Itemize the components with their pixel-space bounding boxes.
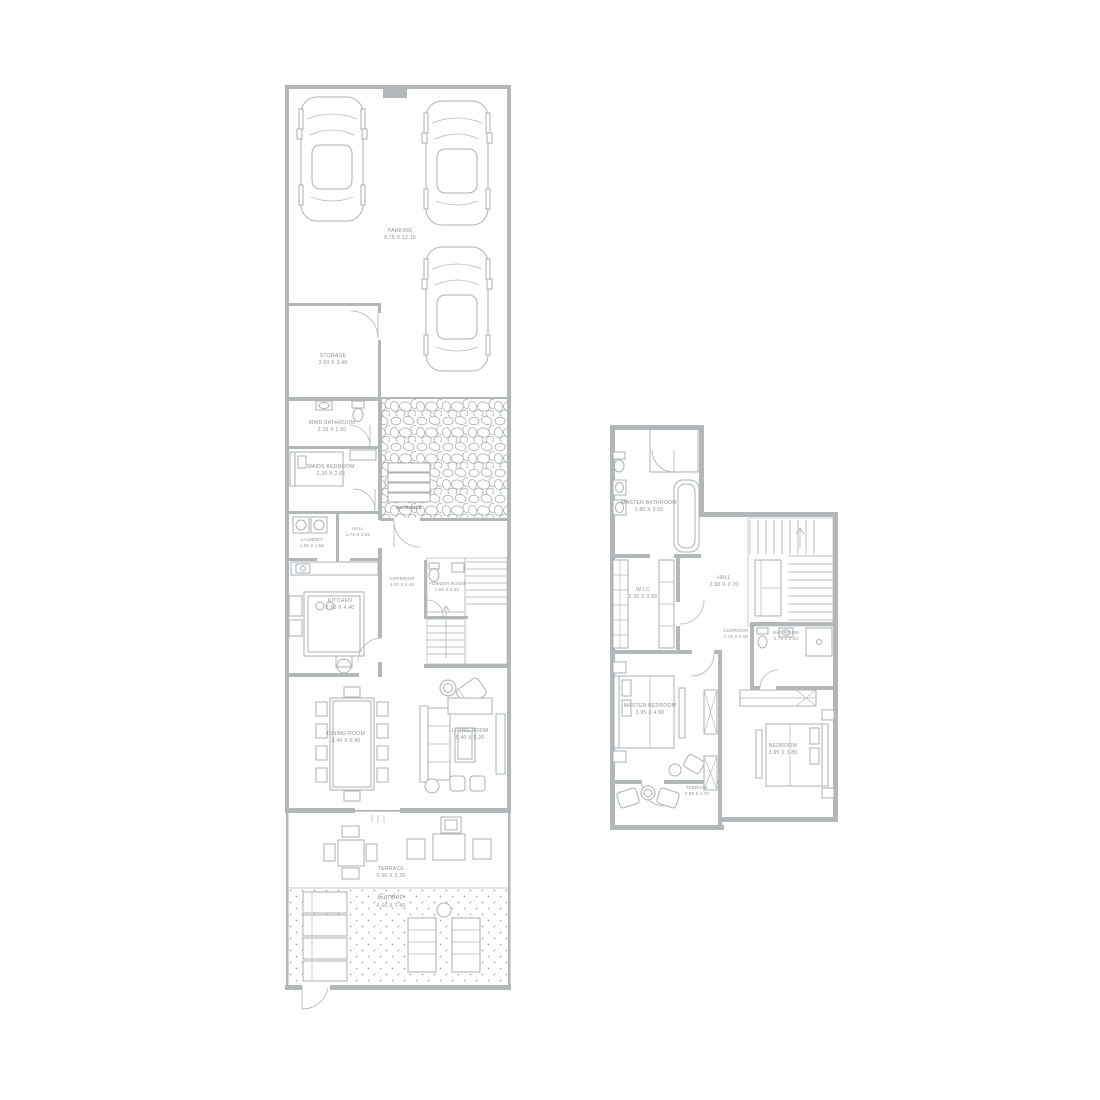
powder-room-label: POWDER ROOM bbox=[429, 581, 465, 586]
hall-ff-dim: 2.90 X 2.70 bbox=[710, 582, 739, 588]
nightstand-icon bbox=[822, 710, 834, 720]
bathroom-ff: BATHROOM 2.75 X 2.20 bbox=[757, 628, 832, 688]
sliding-door bbox=[355, 810, 400, 812]
entrance-courtyard: ENTRANCE bbox=[382, 399, 507, 547]
garden-dim: 6.60 X 2.40 bbox=[377, 903, 406, 909]
first-floor-plan: MASTER BATHROOM 1.80 X 3.60 W.I.C 2.50 X… bbox=[610, 425, 838, 830]
armchair-icon bbox=[683, 753, 706, 774]
master-bedroom: MASTER BEDROOM 3.95 X 4.90 bbox=[613, 654, 717, 790]
maids-bedroom-dim: 2.20 X 2.65 bbox=[317, 471, 346, 477]
laundry-room: LAUNDRY 1.60 X 1.50 bbox=[293, 517, 327, 548]
wic-dim: 2.50 X 3.65 bbox=[629, 594, 658, 600]
shower-icon bbox=[806, 628, 832, 656]
nightstand-icon bbox=[613, 662, 626, 673]
side-table-icon bbox=[425, 779, 439, 793]
dining-room-label: DINING ROOM bbox=[327, 731, 365, 737]
dining-room: DINING ROOM 3.40 X 5.40 bbox=[316, 687, 388, 801]
headboard bbox=[822, 724, 828, 786]
floor-plan-image: PARKING 8.75 X 12.15 STORAGE 3.50 X 3.40… bbox=[0, 0, 1100, 1100]
terrace-gf: TERRACE 6.60 X 3.20 bbox=[324, 815, 491, 879]
maid-bathroom: MAID BATHROOM 2.15 X 1.60 bbox=[309, 401, 370, 446]
sun-lounger-icon bbox=[303, 938, 347, 959]
terrace-ff-label: TERRACE bbox=[686, 785, 708, 790]
terrace-ff-dim: 2.95 X 1.70 bbox=[685, 791, 710, 796]
bedroom-ff-label: BEDROOM bbox=[769, 743, 797, 749]
sofa-back bbox=[420, 706, 428, 782]
storage-room: STORAGE 3.50 X 3.40 bbox=[319, 311, 378, 366]
living-room: LIVING ROOM 5.40 X 5.20 bbox=[420, 677, 505, 793]
living-room-label: LIVING ROOM bbox=[452, 728, 489, 734]
outdoor-chair-icon bbox=[473, 839, 491, 859]
floor-plan-page: PARKING 8.75 X 12.15 STORAGE 3.50 X 3.40… bbox=[0, 0, 1100, 1100]
maids-bedroom: MAIDS BEDROOM 2.20 X 2.65 bbox=[290, 450, 376, 511]
outdoor-chair-icon bbox=[407, 839, 425, 859]
corridor-ff: CORRIDOR 1.15 X 2.55 bbox=[724, 628, 749, 639]
ground-floor-plan: PARKING 8.75 X 12.15 STORAGE 3.50 X 3.40… bbox=[285, 85, 511, 1009]
maid-bathroom-label: MAID BATHROOM bbox=[309, 420, 356, 426]
master-bathroom-label: MASTER BATHROOM bbox=[621, 500, 677, 506]
wic-label: W.I.C bbox=[636, 587, 650, 593]
tv-console-icon bbox=[496, 714, 505, 774]
master-bathroom: MASTER BATHROOM 1.80 X 3.60 bbox=[613, 428, 699, 552]
kitchen-label: KITCHEN bbox=[328, 598, 352, 604]
parking-area: PARKING 8.75 X 12.15 bbox=[297, 97, 492, 371]
sun-lounger-icon bbox=[303, 892, 347, 913]
bed-bench-icon bbox=[679, 688, 685, 738]
bedroom-ff-dim: 3.65 X 3.85 bbox=[769, 750, 798, 756]
hall-gf: HALL 1.75 X 3.05 bbox=[346, 526, 371, 537]
nightstand-icon bbox=[613, 751, 626, 762]
powder-room-dim: 1.60 X 2.30 bbox=[435, 587, 460, 592]
master-bedroom-dim: 3.95 X 4.90 bbox=[636, 710, 665, 716]
sun-lounger-icon bbox=[303, 915, 347, 936]
outdoor-table-icon bbox=[433, 834, 465, 860]
side-table-icon bbox=[440, 680, 456, 696]
outdoor-table-icon bbox=[338, 840, 364, 866]
maid-bathroom-dim: 2.15 X 1.60 bbox=[318, 427, 347, 433]
corridor-ff-label: CORRIDOR bbox=[724, 628, 749, 633]
hall-ff: HALL 2.90 X 2.70 bbox=[710, 560, 781, 616]
sofa-chaise bbox=[448, 698, 492, 714]
outdoor-chair-icon bbox=[441, 817, 461, 833]
pouf-icon bbox=[669, 764, 681, 776]
sun-lounger-icon bbox=[408, 918, 436, 972]
laundry-dim: 1.60 X 1.50 bbox=[300, 543, 325, 548]
corridor-label: CORRIDOR bbox=[390, 576, 415, 581]
laundry-label: LAUNDRY bbox=[301, 537, 323, 542]
living-room-dim: 5.40 X 5.20 bbox=[456, 735, 485, 741]
hall-ff-label: HALL bbox=[717, 575, 731, 581]
car-icon bbox=[422, 247, 492, 371]
sun-lounger-icon bbox=[303, 961, 347, 981]
bathroom-ff-label: BATHROOM bbox=[773, 630, 799, 635]
kitchen-dim: 2.30 X 4.40 bbox=[326, 605, 355, 611]
hall-dim: 1.75 X 3.05 bbox=[346, 532, 371, 537]
bed-bench-icon bbox=[756, 730, 762, 778]
side-table-icon bbox=[437, 903, 451, 917]
parking-dim: 8.75 X 12.15 bbox=[384, 235, 416, 241]
pouf-icon bbox=[450, 776, 465, 791]
garden-label: Garden bbox=[378, 893, 405, 901]
car-icon bbox=[297, 97, 367, 221]
corridor-ff-dim: 1.15 X 2.55 bbox=[724, 634, 749, 639]
storage-dim: 3.50 X 3.40 bbox=[319, 360, 348, 366]
hall-label: HALL bbox=[352, 526, 364, 531]
kitchen: KITCHEN 2.30 X 4.40 bbox=[289, 562, 382, 673]
bedroom-ff: BEDROOM 3.65 X 3.85 bbox=[740, 690, 834, 798]
walk-in-closet: W.I.C 2.50 X 3.65 bbox=[613, 560, 704, 648]
corridor-dim: 4.00 X 1.40 bbox=[390, 582, 415, 587]
master-bedroom-label: MASTER BEDROOM bbox=[624, 703, 677, 709]
garden: Garden 6.60 X 2.40 bbox=[289, 889, 508, 1009]
nightstand-icon bbox=[822, 788, 834, 798]
entrance-label: ENTRANCE bbox=[396, 505, 422, 510]
outdoor-chair-icon bbox=[616, 787, 640, 808]
sun-lounger-icon bbox=[452, 918, 480, 972]
terrace-ff: TERRACE 2.95 X 1.70 bbox=[616, 784, 709, 809]
car-icon bbox=[422, 101, 492, 225]
bathroom-ff-dim: 2.75 X 2.20 bbox=[774, 636, 799, 641]
master-bathroom-dim: 1.80 X 3.60 bbox=[635, 507, 664, 513]
storage-label: STORAGE bbox=[320, 353, 347, 359]
corridor-gf: CORRIDOR 4.00 X 1.40 bbox=[390, 576, 415, 587]
headboard bbox=[614, 676, 619, 748]
parking-label: PARKING bbox=[388, 228, 412, 234]
pouf-icon bbox=[470, 776, 485, 791]
entrance-steps bbox=[388, 463, 430, 502]
outdoor-table-icon bbox=[641, 786, 655, 800]
maids-bedroom-label: MAIDS BEDROOM bbox=[307, 464, 354, 470]
dining-room-dim: 3.40 X 5.40 bbox=[332, 738, 361, 744]
terrace-label: TERRACE bbox=[378, 866, 405, 872]
terrace-dim: 6.60 X 3.20 bbox=[377, 873, 406, 879]
